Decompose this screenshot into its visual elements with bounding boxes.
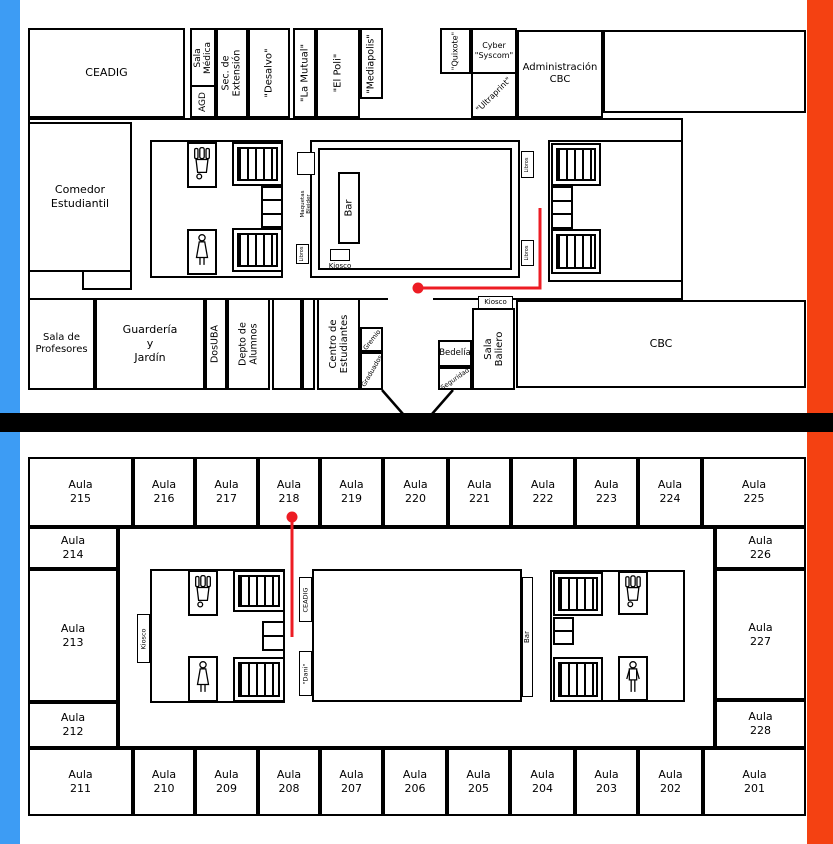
female-wc-icon xyxy=(191,233,213,271)
male-wc-icon xyxy=(622,660,644,698)
room-aula-227: Aula227 xyxy=(715,569,806,700)
stairs-icon xyxy=(553,572,603,616)
room-label: "La Mutual" xyxy=(299,44,310,102)
room-label: Aula219 xyxy=(339,478,363,506)
room-aula-224: Aula224 xyxy=(638,457,702,527)
room-aula-220: Aula220 xyxy=(383,457,448,527)
room-label: Aula204 xyxy=(530,768,554,796)
room-label: Aula206 xyxy=(403,768,427,796)
floor-plan-map: CEADIG SalaMédica AGD Sec. deExtensión "… xyxy=(0,0,833,844)
room-comedor-annex xyxy=(82,270,132,290)
room-unlabeled-a xyxy=(272,298,302,390)
room-aula-212: Aula212 xyxy=(28,702,118,748)
upper-left-wc-bottom xyxy=(187,229,217,275)
room-unlabeled-b xyxy=(302,298,315,390)
room-graduados: Graduados xyxy=(360,352,383,390)
room-label: Sec. deExtensión xyxy=(221,50,242,97)
maquetas-stand xyxy=(297,152,315,175)
room-gremio: Gremio xyxy=(360,327,383,352)
stand-label: CEADIG xyxy=(302,587,309,612)
room-label: AGD xyxy=(198,92,208,112)
room-quixote: "Quixote" xyxy=(440,28,471,74)
room-seguridad: Seguridad xyxy=(438,367,472,390)
room-aula-204: Aula204 xyxy=(510,748,575,816)
room-aula-228: Aula228 xyxy=(715,700,806,748)
room-aula-207: Aula207 xyxy=(320,748,383,816)
room-depto-alumnos: Depto deAlumnos xyxy=(227,298,270,390)
room-aula-221: Aula221 xyxy=(448,457,511,527)
room-label: Sala deProfesores xyxy=(35,332,87,357)
room-ceadig: CEADIG xyxy=(28,28,185,118)
room-aula-226: Aula226 xyxy=(715,527,806,569)
lower-central-room xyxy=(312,569,522,702)
room-comedor-estudiantil: ComedorEstudiantil xyxy=(28,122,132,272)
room-cbc: CBC xyxy=(516,300,806,388)
room-label: GuarderíayJardín xyxy=(123,323,178,364)
room-label: CBC xyxy=(650,337,673,351)
room-centro-estudiantes: Centro deEstudiantes xyxy=(317,298,360,390)
room-label: Aula205 xyxy=(466,768,490,796)
entrance-funnel-lines xyxy=(382,390,453,414)
room-label: Aula223 xyxy=(594,478,618,506)
room-label: SalaBaliero xyxy=(482,332,504,367)
kiosco-label: Kiosco xyxy=(484,298,507,307)
room-aula-217: Aula217 xyxy=(195,457,258,527)
room-label: "Desalvo" xyxy=(263,48,274,97)
room-label: Cyber"Syscom" xyxy=(475,41,513,61)
room-aula-214: Aula214 xyxy=(28,527,118,569)
room-aula-223: Aula223 xyxy=(575,457,638,527)
stairs-icon xyxy=(233,570,285,612)
room-label: Aula208 xyxy=(277,768,301,796)
floor-divider-band xyxy=(0,413,833,432)
room-label: CEADIG xyxy=(85,66,127,80)
room-label: Aula207 xyxy=(339,768,363,796)
libros-stand: Libros xyxy=(296,244,309,264)
kiosco-stand xyxy=(330,249,350,261)
room-aula-211: Aula211 xyxy=(28,748,133,816)
room-aula-210: Aula210 xyxy=(133,748,195,816)
room-label: Graduados xyxy=(359,354,384,389)
room-aula-205: Aula205 xyxy=(447,748,510,816)
room-label: "Quixote" xyxy=(451,32,460,70)
room-label: ComedorEstudiantil xyxy=(51,183,109,211)
room-label: "Mediapolis" xyxy=(366,34,377,93)
room-aula-203: Aula203 xyxy=(575,748,638,816)
room-aula-201: Aula201 xyxy=(703,748,806,816)
room-dosuba: DosUBA xyxy=(205,298,227,390)
bar-stand: Bar xyxy=(522,577,533,697)
upper-hall-opening xyxy=(388,294,433,304)
kiosco-label: Kiosco xyxy=(318,261,362,271)
room-aula-202: Aula202 xyxy=(638,748,703,816)
room-ultraprint: "Ultraprint" xyxy=(471,72,517,118)
room-sec-extension: Sec. deExtensión xyxy=(216,28,248,118)
ceadig-stand: CEADIG xyxy=(299,577,312,622)
lower-left-wc-bottom xyxy=(188,656,218,702)
room-aula-219: Aula219 xyxy=(320,457,383,527)
room-aula-209: Aula209 xyxy=(195,748,258,816)
room-aula-225: Aula225 xyxy=(702,457,806,527)
room-label: Aula213 xyxy=(61,622,85,650)
room-label: Seguridad xyxy=(439,366,471,392)
room-bar: Bar xyxy=(338,172,360,244)
room-aula-215: Aula215 xyxy=(28,457,133,527)
room-label: Aula220 xyxy=(403,478,427,506)
room-label: Aula211 xyxy=(68,768,92,796)
maquetas-label: MaquetasBlejder xyxy=(297,176,315,231)
room-label: Aula221 xyxy=(467,478,491,506)
room-label: Bedelía xyxy=(439,348,471,359)
room-aula-206: Aula206 xyxy=(383,748,447,816)
room-label: Aula215 xyxy=(68,478,92,506)
kiosco-label: Kiosco xyxy=(140,628,147,649)
stairs-icon xyxy=(551,229,601,274)
room-aula-213: Aula213 xyxy=(28,569,118,702)
person-wc-icon xyxy=(192,574,214,612)
stand-label: Bar xyxy=(524,631,532,643)
room-label: Gremio xyxy=(361,328,382,352)
room-label: DosUBA xyxy=(211,325,222,363)
stairs-icon xyxy=(232,228,283,272)
libros-stand: Libros xyxy=(521,151,534,178)
room-label: Aula212 xyxy=(61,711,85,739)
stairs-icon xyxy=(233,657,285,702)
room-label: Aula210 xyxy=(152,768,176,796)
room-label: Centro deEstudiantes xyxy=(327,315,349,374)
room-sala-baliero: SalaBaliero xyxy=(472,308,515,390)
libros-label: Libros xyxy=(300,247,306,262)
room-label: Aula202 xyxy=(658,768,682,796)
room-aula-216: Aula216 xyxy=(133,457,195,527)
stairs-icon xyxy=(232,142,283,186)
person-wc-icon xyxy=(622,575,644,611)
room-label: Depto deAlumnos xyxy=(238,322,259,366)
stairs-icon xyxy=(551,143,601,186)
room-sala-profesores: Sala deProfesores xyxy=(28,298,95,390)
dani-stand: "Dani" xyxy=(299,651,312,696)
room-agd: AGD xyxy=(190,85,216,118)
stairs-icon xyxy=(553,657,603,702)
female-wc-icon xyxy=(192,660,214,698)
room-label: Aula201 xyxy=(742,768,766,796)
room-label: Aula224 xyxy=(658,478,682,506)
libros-stand: Libros xyxy=(521,240,534,266)
room-administracion-cbc: AdministraciónCBC xyxy=(517,30,603,118)
room-desalvo: "Desalvo" xyxy=(248,28,290,118)
libros-label: Libros xyxy=(525,157,531,172)
room-label: AdministraciónCBC xyxy=(523,62,598,87)
room-label: Aula209 xyxy=(214,768,238,796)
room-label: Aula226 xyxy=(748,534,772,562)
room-guarderia: GuarderíayJardín xyxy=(95,298,205,390)
person-wc-icon xyxy=(191,146,213,184)
stand-label: "Dani" xyxy=(302,663,309,684)
room-el-poli: "El Poli" xyxy=(316,28,360,118)
elevator-icon xyxy=(262,621,285,651)
lower-right-wc-top xyxy=(618,571,648,615)
room-sala-medica: SalaMédica xyxy=(190,28,216,87)
libros-label: Libros xyxy=(525,246,531,261)
room-label: Aula203 xyxy=(594,768,618,796)
room-label: Aula222 xyxy=(531,478,555,506)
room-label: Bar xyxy=(343,199,354,216)
lower-left-wc-top xyxy=(188,570,218,616)
room-label: "Ultraprint" xyxy=(474,75,513,114)
room-label: "El Poli" xyxy=(332,54,343,93)
lower-right-wc-bottom xyxy=(618,656,648,701)
room-label: Aula225 xyxy=(742,478,766,506)
room-aula-222: Aula222 xyxy=(511,457,575,527)
room-label: SalaMédica xyxy=(193,42,213,74)
kiosco-stand: Kiosco xyxy=(137,614,150,663)
room-aula-218: Aula218 xyxy=(258,457,320,527)
elevator-icon xyxy=(551,186,573,229)
room-label: Aula228 xyxy=(748,710,772,738)
room-label: Aula216 xyxy=(152,478,176,506)
elevator-icon xyxy=(261,186,283,228)
room-bedelia: Bedelía xyxy=(438,340,472,367)
room-label: Aula218 xyxy=(277,478,301,506)
room-label: Aula217 xyxy=(214,478,238,506)
room-cyber-syscom: Cyber"Syscom" xyxy=(471,28,517,74)
room-label: Aula227 xyxy=(748,621,772,649)
elevator-icon xyxy=(553,617,574,645)
room-aula-208: Aula208 xyxy=(258,748,320,816)
upper-left-wc-top xyxy=(187,142,217,188)
room-la-mutual: "La Mutual" xyxy=(293,28,316,118)
room-label: Aula214 xyxy=(61,534,85,562)
room-mediapolis: "Mediapolis" xyxy=(360,28,383,99)
room-northeast-unlabeled xyxy=(603,30,806,113)
